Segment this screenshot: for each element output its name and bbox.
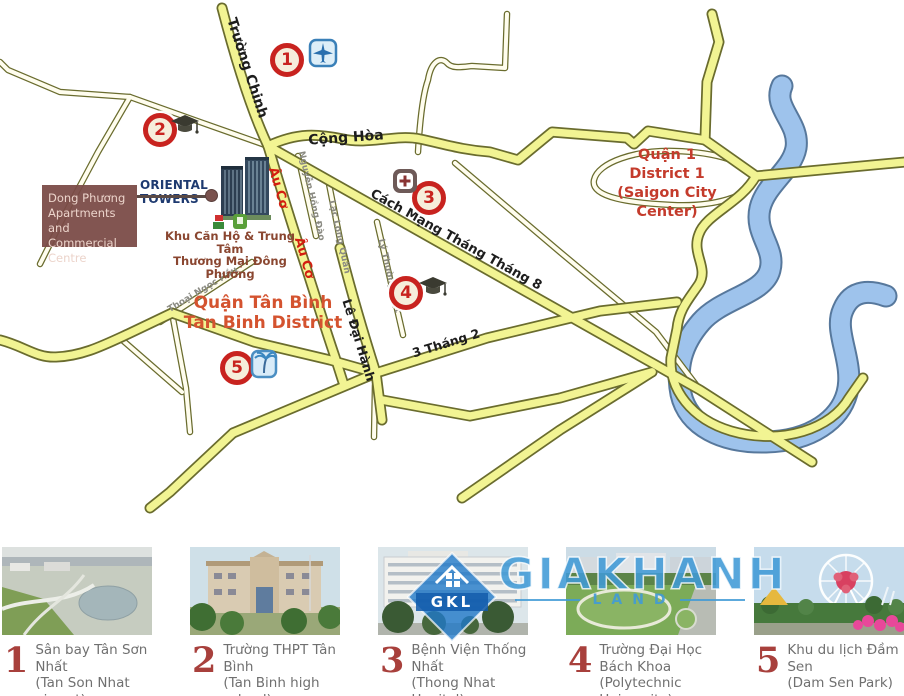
marker-4-number: 4 bbox=[400, 283, 412, 303]
brand-mark-1 bbox=[213, 215, 224, 229]
map-marker-1: 1 bbox=[270, 43, 304, 77]
airport-icon bbox=[308, 38, 338, 68]
project-box-line3: Commercial Centre bbox=[48, 236, 137, 266]
tan-binh-district-label: Quận Tân Bình Tan Binh District bbox=[170, 293, 356, 333]
gkl-logo-text: GKL bbox=[431, 593, 474, 611]
marker-3-number: 3 bbox=[423, 188, 435, 208]
map-marker-5: 5 bbox=[220, 351, 254, 385]
callout-line bbox=[137, 195, 207, 198]
legend-title-1: Sân bay Tân Sơn Nhất bbox=[35, 642, 154, 675]
legend-number-4: 4 bbox=[568, 644, 592, 678]
watermark-rule-right bbox=[680, 599, 745, 602]
legend-title-5: Khu du lịch Đầm Sen bbox=[787, 642, 904, 675]
oriental-towers-illustration bbox=[215, 156, 275, 222]
watermark-rule-left bbox=[515, 599, 580, 602]
location-map-page: Trường Chinh Cộng Hòa Cách Mạng Tháng Th… bbox=[0, 0, 904, 696]
legend-subtitle-3: (Thong Nhat Hopital) bbox=[411, 675, 530, 696]
school-icon-2 bbox=[170, 112, 200, 138]
district-1-line2: District 1 bbox=[592, 165, 742, 184]
district-1-line3: (Saigon City Center) bbox=[592, 184, 742, 222]
legend-number-3: 3 bbox=[380, 644, 404, 678]
brand-mark-2 bbox=[233, 214, 247, 229]
legend-title-4: Trường Đại Học Bách Khoa bbox=[599, 642, 718, 675]
marker-2-number: 2 bbox=[154, 120, 166, 140]
project-box-line1: Dong Phương bbox=[48, 191, 137, 206]
airport-photo bbox=[2, 547, 152, 635]
legend-caption-4: 4 Trường Đại Học Bách Khoa (Polytechnic … bbox=[566, 642, 718, 696]
project-caption: Khu Căn Hộ & Trung Tâm Thương Mại Đông P… bbox=[150, 230, 310, 280]
legend-caption-1: 1 Sân bay Tân Sơn Nhất (Tan Son Nhat air… bbox=[2, 642, 154, 696]
legend-caption-2: 2 Trường THPT Tân Bình (Tan Binh high sc… bbox=[190, 642, 342, 696]
legend-item-airport: 1 Sân bay Tân Sơn Nhất (Tan Son Nhat air… bbox=[2, 547, 154, 696]
hospital-icon bbox=[392, 168, 418, 194]
legend-title-2: Trường THPT Tân Bình bbox=[223, 642, 342, 675]
high-school-photo bbox=[190, 547, 340, 635]
legend-caption-3: 3 Bệnh Viện Thống Nhất (Thong Nhat Hopit… bbox=[378, 642, 530, 696]
project-info-box: Dong Phương Apartments and Commercial Ce… bbox=[42, 185, 137, 247]
district-1-line1: Quận 1 bbox=[592, 146, 742, 165]
legend-subtitle-1: (Tan Son Nhat airport) bbox=[35, 675, 154, 696]
legend-caption-5: 5 Khu du lịch Đầm Sen (Dam Sen Park) bbox=[754, 642, 904, 692]
legend-number-2: 2 bbox=[192, 644, 216, 678]
school-icon-4 bbox=[418, 274, 448, 300]
legend-subtitle-5: (Dam Sen Park) bbox=[787, 675, 904, 692]
watermark-land-text: LAND bbox=[580, 592, 679, 608]
marker-1-number: 1 bbox=[281, 50, 293, 70]
project-caption-line2: Thương Mại Đông Phương bbox=[150, 255, 310, 280]
legend-subtitle-2: (Tan Binh high school) bbox=[223, 675, 342, 696]
tan-binh-line2: Tan Binh District bbox=[170, 313, 356, 333]
road-map-canvas bbox=[0, 0, 904, 540]
project-box-line2: Apartments and bbox=[48, 206, 137, 236]
project-caption-line1: Khu Căn Hộ & Trung Tâm bbox=[150, 230, 310, 255]
watermark-land: LAND bbox=[515, 592, 745, 608]
park-icon bbox=[250, 349, 278, 379]
legend-number-1: 1 bbox=[4, 644, 28, 678]
legend-number-5: 5 bbox=[756, 644, 780, 678]
legend-title-3: Bệnh Viện Thống Nhất bbox=[411, 642, 530, 675]
legend-item-high-school: 2 Trường THPT Tân Bình (Tan Binh high sc… bbox=[190, 547, 342, 696]
district-1-label: Quận 1 District 1 (Saigon City Center) bbox=[592, 146, 742, 222]
marker-5-number: 5 bbox=[231, 358, 243, 378]
legend-subtitle-4: (Polytechnic University) bbox=[599, 675, 718, 696]
tan-binh-line1: Quận Tân Bình bbox=[170, 293, 356, 313]
